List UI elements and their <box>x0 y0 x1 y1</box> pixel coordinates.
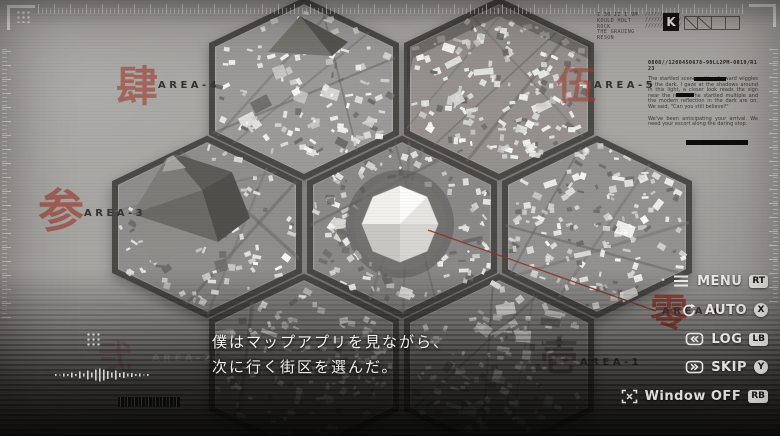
backlog-arrow-icon <box>685 332 704 346</box>
skip-button[interactable]: SKIP Y <box>685 358 768 376</box>
side-note-body: The startled scene writing forward wiggl… <box>648 77 758 111</box>
area-5-kanji: 伍 <box>556 66 596 106</box>
calibration-dots-icon <box>16 10 32 23</box>
barcode <box>118 397 180 407</box>
area-5-label: AREA-5 <box>594 80 656 91</box>
area-3-kanji: 参 <box>38 188 84 234</box>
progress-box-empty <box>712 16 726 30</box>
redaction-bar <box>694 77 726 81</box>
area-3-label: AREA-3 <box>84 208 146 219</box>
menu-button[interactable]: MENU RT <box>672 272 768 290</box>
tick-meter <box>55 366 155 384</box>
frame-corner-top-right-icon <box>749 4 776 27</box>
hamburger-menu-icon <box>672 274 690 288</box>
log-button-badge: LB <box>749 333 768 346</box>
microtext-line: THE GRAUING RESON <box>597 30 643 42</box>
auto-repeat-icon <box>680 303 698 318</box>
skip-button-badge: Y <box>754 360 768 374</box>
log-button-label: LOG <box>711 332 742 347</box>
area-4-kanji: 肆 <box>116 66 158 108</box>
window-toggle-icon <box>621 389 638 404</box>
redaction-bar <box>686 140 748 145</box>
dialogue-line-1: 僕はマップアプリを見ながら、 <box>212 330 552 355</box>
side-note-body-2: We've been anticipating your arrival. We… <box>648 117 758 128</box>
auto-button-badge: X <box>754 303 768 317</box>
progress-box-slashed <box>684 16 698 30</box>
map-hex-area-0[interactable] <box>310 139 494 315</box>
progress-box-slashed <box>698 16 712 30</box>
auto-button-label: AUTO <box>705 303 747 318</box>
header-microtext: I 30 II I 9M KOULD HOLT ROCK THE GRAUING… <box>597 13 643 42</box>
window-off-button-badge: RB <box>748 390 768 403</box>
window-off-button[interactable]: Window OFF RB <box>621 387 768 405</box>
side-note-panel: 0808//1200450678-90LL2PM-0019/R123 The s… <box>648 60 758 128</box>
menu-button-label: MENU <box>697 274 742 289</box>
area-4-label: AREA-4 <box>158 80 220 91</box>
area-2-label: AREA-2 <box>152 353 214 364</box>
left-ruler-ticks <box>2 46 11 318</box>
menu-button-badge: RT <box>749 275 768 288</box>
map-hex-east[interactable] <box>505 139 689 315</box>
progress-boxes <box>684 16 740 30</box>
game-screen: I 30 II I 9M KOULD HOLT ROCK THE GRAUING… <box>0 0 780 436</box>
fast-forward-icon <box>685 360 704 374</box>
dialogue-box[interactable]: 僕はマップアプリを見ながら、 次に行く街区を選んだ。 <box>212 330 552 380</box>
window-off-button-label: Window OFF <box>645 389 742 404</box>
skip-button-label: SKIP <box>711 360 747 375</box>
progress-box-empty <box>726 16 740 30</box>
dialogue-line-2: 次に行く街区を選んだ。 <box>212 355 552 380</box>
auto-button[interactable]: AUTO X <box>680 301 768 319</box>
map-hex-area-3[interactable] <box>115 139 299 315</box>
side-note-header: 0808//1200450678-90LL2PM-0019/R123 <box>648 60 758 72</box>
area-1-label: AREA-1 <box>580 357 642 368</box>
right-ruler-ticks <box>769 46 778 302</box>
log-button[interactable]: LOG LB <box>685 330 768 348</box>
mini-dot-cluster-icon <box>86 332 101 346</box>
redaction-bar <box>676 93 694 97</box>
k-logo: K <box>663 13 679 31</box>
map-hex-area-4[interactable] <box>212 1 396 177</box>
